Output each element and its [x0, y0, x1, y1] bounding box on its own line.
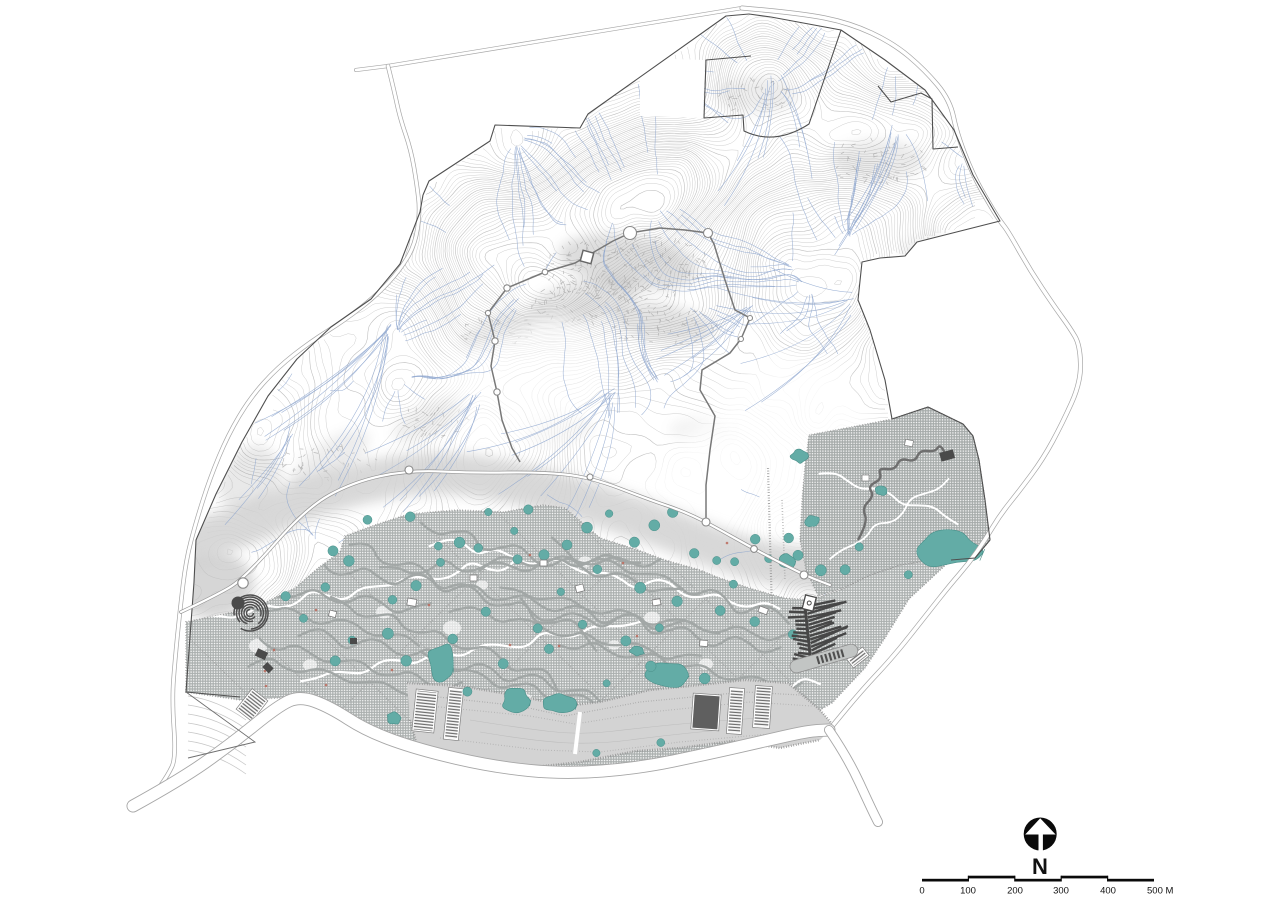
svg-text:200: 200 [1007, 886, 1023, 897]
svg-text:300: 300 [1053, 886, 1069, 897]
svg-text:400: 400 [1100, 886, 1116, 897]
svg-text:N: N [1032, 854, 1048, 879]
svg-text:500 M: 500 M [1147, 886, 1173, 897]
svg-text:0: 0 [919, 886, 924, 897]
svg-text:100: 100 [960, 886, 976, 897]
